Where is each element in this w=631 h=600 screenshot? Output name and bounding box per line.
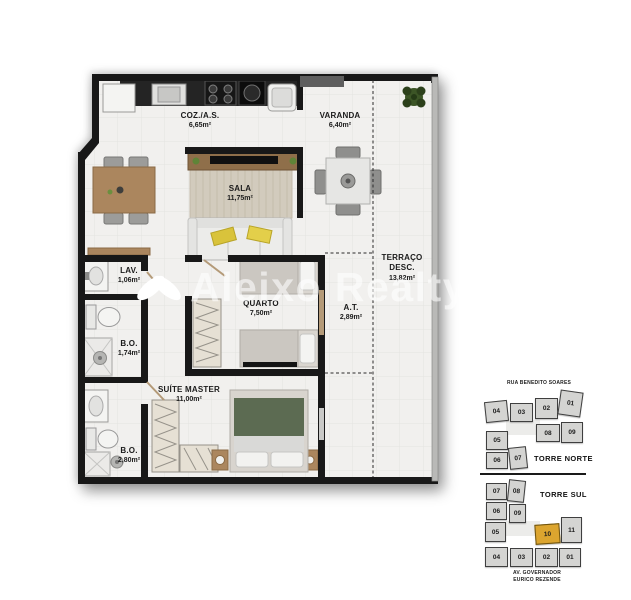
room-area: 11,00m² [158, 395, 220, 404]
unit-norte-03: 03 [510, 403, 533, 422]
room-label-bo-suite: B.O. 2,80m² [118, 446, 140, 465]
unit-sul-01: 01 [559, 548, 581, 567]
unit-sul-04: 04 [485, 547, 508, 567]
torre-norte-label: TORRE NORTE [534, 454, 593, 463]
room-area: 6,65m² [181, 121, 220, 130]
room-label-at: A.T. 2,89m² [340, 303, 362, 322]
room-label-varanda: VARANDA 6,40m² [320, 111, 361, 130]
unit-norte-05: 05 [486, 431, 508, 450]
unit-norte-06: 06 [486, 452, 508, 469]
room-name: DESC. [382, 263, 423, 273]
keyplan-divider [480, 473, 586, 475]
unit-norte-09: 09 [561, 422, 583, 443]
corridor [506, 420, 540, 435]
room-area: 1,74m² [118, 349, 140, 358]
unit-sul-10-highlighted: 10 [534, 523, 560, 545]
room-label-lav: LAV. 1,06m² [118, 266, 140, 285]
wall-column [300, 76, 344, 87]
street-label-top: RUA BENEDITO SOARES [507, 380, 571, 386]
unit-norte-02: 02 [535, 398, 558, 419]
glass-railing [432, 77, 438, 481]
room-area: 7,50m² [243, 309, 279, 318]
unit-sul-03: 03 [510, 548, 533, 567]
unit-norte-08: 08 [536, 424, 560, 442]
unit-sul-05: 05 [485, 522, 506, 542]
dining-table [93, 167, 155, 213]
sideboard [88, 248, 150, 255]
bedroom-tv [243, 362, 297, 367]
room-label-coz: COZ./A.S. 6,65m² [181, 111, 220, 130]
fridge [103, 84, 135, 112]
unit-norte-07: 07 [508, 446, 528, 470]
room-label-quarto: QUARTO 7,50m² [243, 299, 279, 318]
room-area: 2,89m² [340, 313, 362, 322]
room-area: 13,82m² [382, 274, 423, 283]
window [319, 290, 324, 335]
keyplan: RUA BENEDITO SOARES 04 03 02 01 08 09 05… [478, 373, 592, 593]
unit-sul-09: 09 [509, 504, 526, 523]
unit-sul-02: 02 [535, 548, 558, 567]
room-name: B.O. [118, 339, 140, 349]
room-name: COZ./A.S. [181, 111, 220, 121]
room-name: VARANDA [320, 111, 361, 121]
tv [210, 156, 278, 164]
unit-sul-06: 06 [486, 502, 507, 520]
room-area: 6,40m² [320, 121, 361, 130]
room-name: B.O. [118, 446, 140, 456]
room-label-bo-social: B.O. 1,74m² [118, 339, 140, 358]
suite-window [319, 408, 324, 440]
unit-norte-01: 01 [557, 390, 583, 418]
torre-sul-label: TORRE SUL [540, 490, 587, 499]
room-name: LAV. [118, 266, 140, 276]
room-name: QUARTO [243, 299, 279, 309]
room-name: SUÍTE MASTER [158, 385, 220, 395]
unit-sul-11: 11 [561, 517, 582, 543]
plant [403, 87, 426, 108]
room-label-suite: SUÍTE MASTER 11,00m² [158, 385, 220, 404]
room-label-terraco: TERRAÇO DESC. 13,82m² [382, 253, 423, 283]
room-name: TERRAÇO [382, 253, 423, 263]
room-label-sala: SALA 11,75m² [227, 184, 253, 203]
room-area: 11,75m² [227, 194, 253, 203]
street-label-bottom-line2: EURICO REZENDE [513, 577, 561, 583]
room-name: SALA [227, 184, 253, 194]
unit-sul-07: 07 [486, 483, 507, 500]
living-room-furniture [188, 153, 300, 260]
room-area: 2,80m² [118, 456, 140, 465]
room-name: A.T. [340, 303, 362, 313]
unit-sul-08: 08 [507, 479, 526, 503]
floorplan-page: COZ./A.S. 6,65m² VARANDA 6,40m² SALA 11,… [0, 0, 631, 600]
street-label-bottom-line1: AV. GOVERNADOR [513, 570, 561, 576]
room-area: 1,06m² [118, 276, 140, 285]
unit-norte-04: 04 [484, 400, 509, 423]
lav-fixtures [84, 261, 108, 291]
